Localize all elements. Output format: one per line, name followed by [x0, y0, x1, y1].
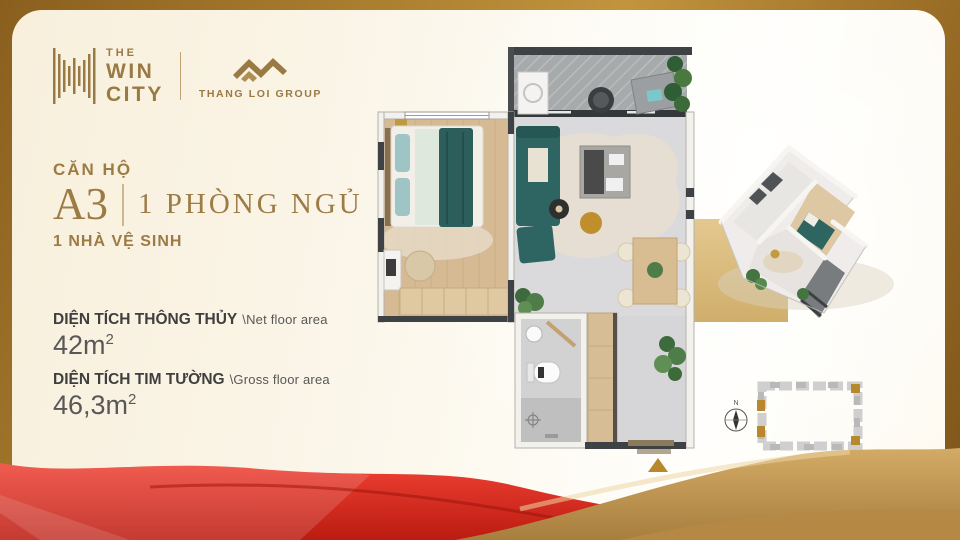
wardrobe — [400, 288, 508, 315]
gold-pouf — [580, 212, 602, 234]
thang-loi-name: THANG LOI GROUP — [199, 88, 322, 100]
gross-area-value: 46,3m2 — [53, 390, 330, 421]
bedroom — [378, 112, 514, 322]
gross-area-label-en: \Gross floor area — [230, 372, 330, 387]
net-area-label-en: \Net floor area — [242, 312, 327, 327]
compass-north-label: N — [733, 400, 738, 407]
header-logos: THE WIN CITY THANG LOI GROUP — [53, 46, 322, 106]
thang-loi-mountain-icon — [227, 53, 293, 83]
unit-info: CĂN HỘ A3 1 PHÒNG NGỦ 1 NHÀ VỆ SINH — [53, 160, 363, 251]
wordmark-the: THE — [106, 48, 164, 59]
isometric-view — [703, 126, 909, 338]
floor-plan — [375, 42, 697, 474]
unit-bathrooms: 1 NHÀ VỆ SINH — [53, 233, 363, 251]
unit-bedrooms: 1 PHÒNG NGỦ — [138, 188, 363, 221]
pouf — [405, 251, 435, 281]
unit-code: A3 — [53, 182, 108, 227]
net-area-value: 42m2 — [53, 330, 330, 361]
win-city-wordmark: THE WIN CITY — [106, 48, 164, 105]
win-city-bars-icon — [53, 46, 97, 106]
sink — [526, 326, 542, 342]
bed — [385, 126, 483, 227]
unit-title-row: A3 1 PHÒNG NGỦ — [53, 182, 363, 227]
brochure-page: THE WIN CITY THANG LOI GROUP CĂN HỘ A3 1… — [0, 0, 960, 540]
net-area-label: DIỆN TÍCH THÔNG THỦY\Net floor area — [53, 311, 330, 329]
net-area-label-vi: DIỆN TÍCH THÔNG THỦY — [53, 311, 237, 328]
gross-area-label: DIỆN TÍCH TIM TƯỜNG\Gross floor area — [53, 371, 330, 389]
kitchen — [588, 313, 617, 443]
wordmark-city: CITY — [106, 84, 164, 105]
balcony — [508, 47, 692, 117]
win-city-logo: THE WIN CITY — [53, 46, 164, 106]
logo-divider — [180, 52, 181, 100]
area-specs: DIỆN TÍCH THÔNG THỦY\Net floor area 42m2… — [53, 311, 330, 431]
gross-area-label-vi: DIỆN TÍCH TIM TƯỜNG — [53, 371, 225, 388]
unit-title-divider — [122, 184, 124, 226]
sofa — [516, 126, 560, 264]
wordmark-win: WIN — [106, 61, 164, 82]
thang-loi-logo: THANG LOI GROUP — [199, 53, 322, 100]
unit-category: CĂN HỘ — [53, 160, 363, 180]
toilet — [527, 362, 560, 383]
gold-wave-decoration — [0, 425, 960, 540]
coffee-table — [580, 146, 630, 198]
